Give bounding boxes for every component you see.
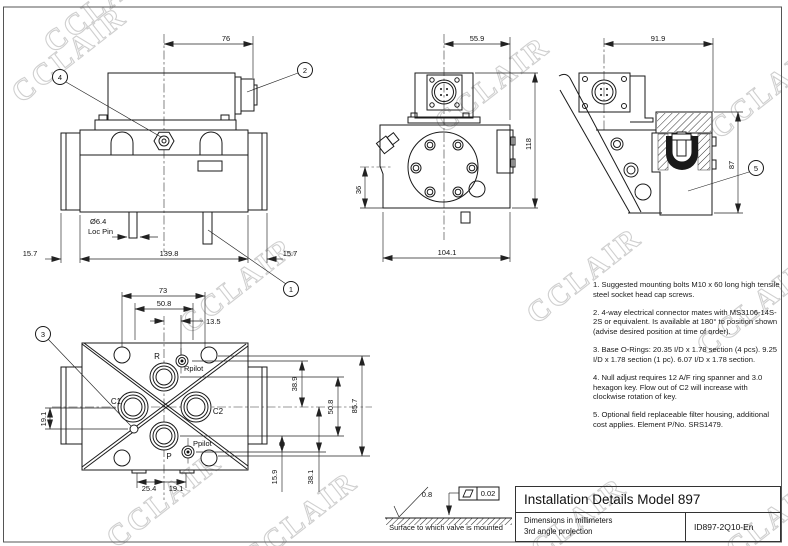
port-label-r: R [154, 352, 160, 361]
dim-ppilot-offset: 19.1 [169, 484, 184, 493]
flatness-callout: 0.02 [449, 487, 499, 515]
surface-caption: Surface to which valve is mounted [389, 523, 503, 532]
note-4: 4. Null adjust requires 12 A/F ring span… [593, 373, 781, 402]
watermark-text: CCLAIR [236, 465, 364, 546]
dim-height: 118 [524, 138, 533, 150]
electrical-connector-box [108, 73, 235, 120]
note-1: 1. Suggested mounting bolts M10 x 60 lon… [593, 280, 781, 299]
title-block: Installation Details Model 897 Dimension… [515, 486, 781, 542]
title-block-notes: Dimensions in millimeters 3rd angle proj… [516, 513, 686, 541]
dim-body-width: 139.8 [160, 249, 179, 258]
null-adjust-cover [469, 181, 485, 197]
note-5: 5. Optional field replaceable filter hou… [593, 410, 781, 429]
doc-number: ID897-2Q10-En [686, 513, 780, 541]
dim-left-cap: 15.7 [23, 249, 38, 258]
drawing-canvas: CCLAIR CCLAIR CCLAIR CCLAIR CCLAIR CCLAI… [0, 0, 788, 546]
note-3: 3. Base O-Rings: 20.35 I/D x 1.78 sectio… [593, 345, 781, 364]
connector-plug [241, 79, 254, 111]
watermark-text: CCLAIR [703, 36, 788, 146]
port-label-p: P [166, 452, 171, 461]
spring-pin-hole [130, 425, 138, 433]
drawing-title: Installation Details Model 897 [516, 487, 780, 513]
projection-note: 3rd angle projection [524, 527, 685, 538]
dim-rpilot-height: 38.9 [290, 377, 299, 392]
dim-bottom-a: 15.9 [270, 470, 279, 485]
dim-width: 104.1 [438, 248, 457, 257]
port-c2 [181, 392, 211, 422]
dim-housing-height: 87 [727, 161, 736, 169]
dim-bottom-b: 38.1 [306, 470, 315, 485]
dim-base: 36 [354, 186, 363, 194]
body-silhouette [559, 74, 641, 212]
balloon-3-number: 3 [41, 330, 45, 339]
port-label-rpilot: Rpilot [184, 364, 204, 373]
port-r [150, 363, 178, 391]
units-note: Dimensions in millimeters [524, 516, 685, 527]
port-label-ppilot: Ppilot [193, 439, 213, 448]
dim-connector-offset: 55.9 [470, 34, 485, 43]
port-p [150, 422, 178, 450]
watermark-text: CCLAIR [173, 231, 301, 341]
null-adjust-pin [203, 212, 212, 244]
dim-port-span: 50.8 [157, 299, 172, 308]
roughness-value: 0.8 [422, 490, 432, 499]
surface-finish-detail: 0.8 0.02 Surface to which valve is mount… [385, 487, 512, 532]
loc-pin-diameter: Ø6.4 [90, 217, 106, 226]
dim-c1-offset: 19.1 [39, 412, 48, 427]
filter-housing [652, 112, 716, 215]
note-2: 2. 4-way electrical connector mates with… [593, 308, 781, 337]
port-label-c2: C2 [213, 407, 224, 416]
dim-section-width: 91.9 [651, 34, 666, 43]
balloon-5-number: 5 [754, 164, 758, 173]
dim-connector-width: 76 [222, 34, 230, 43]
flatness-value: 0.02 [481, 489, 496, 498]
dim-total-height: 85.7 [350, 399, 359, 414]
drawing-sheet: CCLAIR CCLAIR CCLAIR CCLAIR CCLAIR CCLAI… [0, 0, 788, 546]
dim-pilot-offset: 13.5 [206, 317, 221, 326]
dim-rp-span: 50.8 [326, 400, 335, 415]
balloon-2-number: 2 [303, 66, 307, 75]
connector-plate [579, 73, 630, 112]
dim-p-offset: 25.4 [142, 484, 157, 493]
balloon-1-number: 1 [289, 285, 293, 294]
locating-pin [129, 212, 137, 238]
loc-pin-label: Loc Pin [88, 227, 113, 236]
balloon-4-number: 4 [58, 73, 62, 82]
dim-bolt-span: 73 [159, 286, 167, 295]
valve-body-side [380, 125, 510, 208]
port-label-c1: C1 [111, 397, 122, 406]
dim-right-cap: 15.7 [283, 249, 298, 258]
notes-list: 1. Suggested mounting bolts M10 x 60 lon… [593, 280, 781, 438]
